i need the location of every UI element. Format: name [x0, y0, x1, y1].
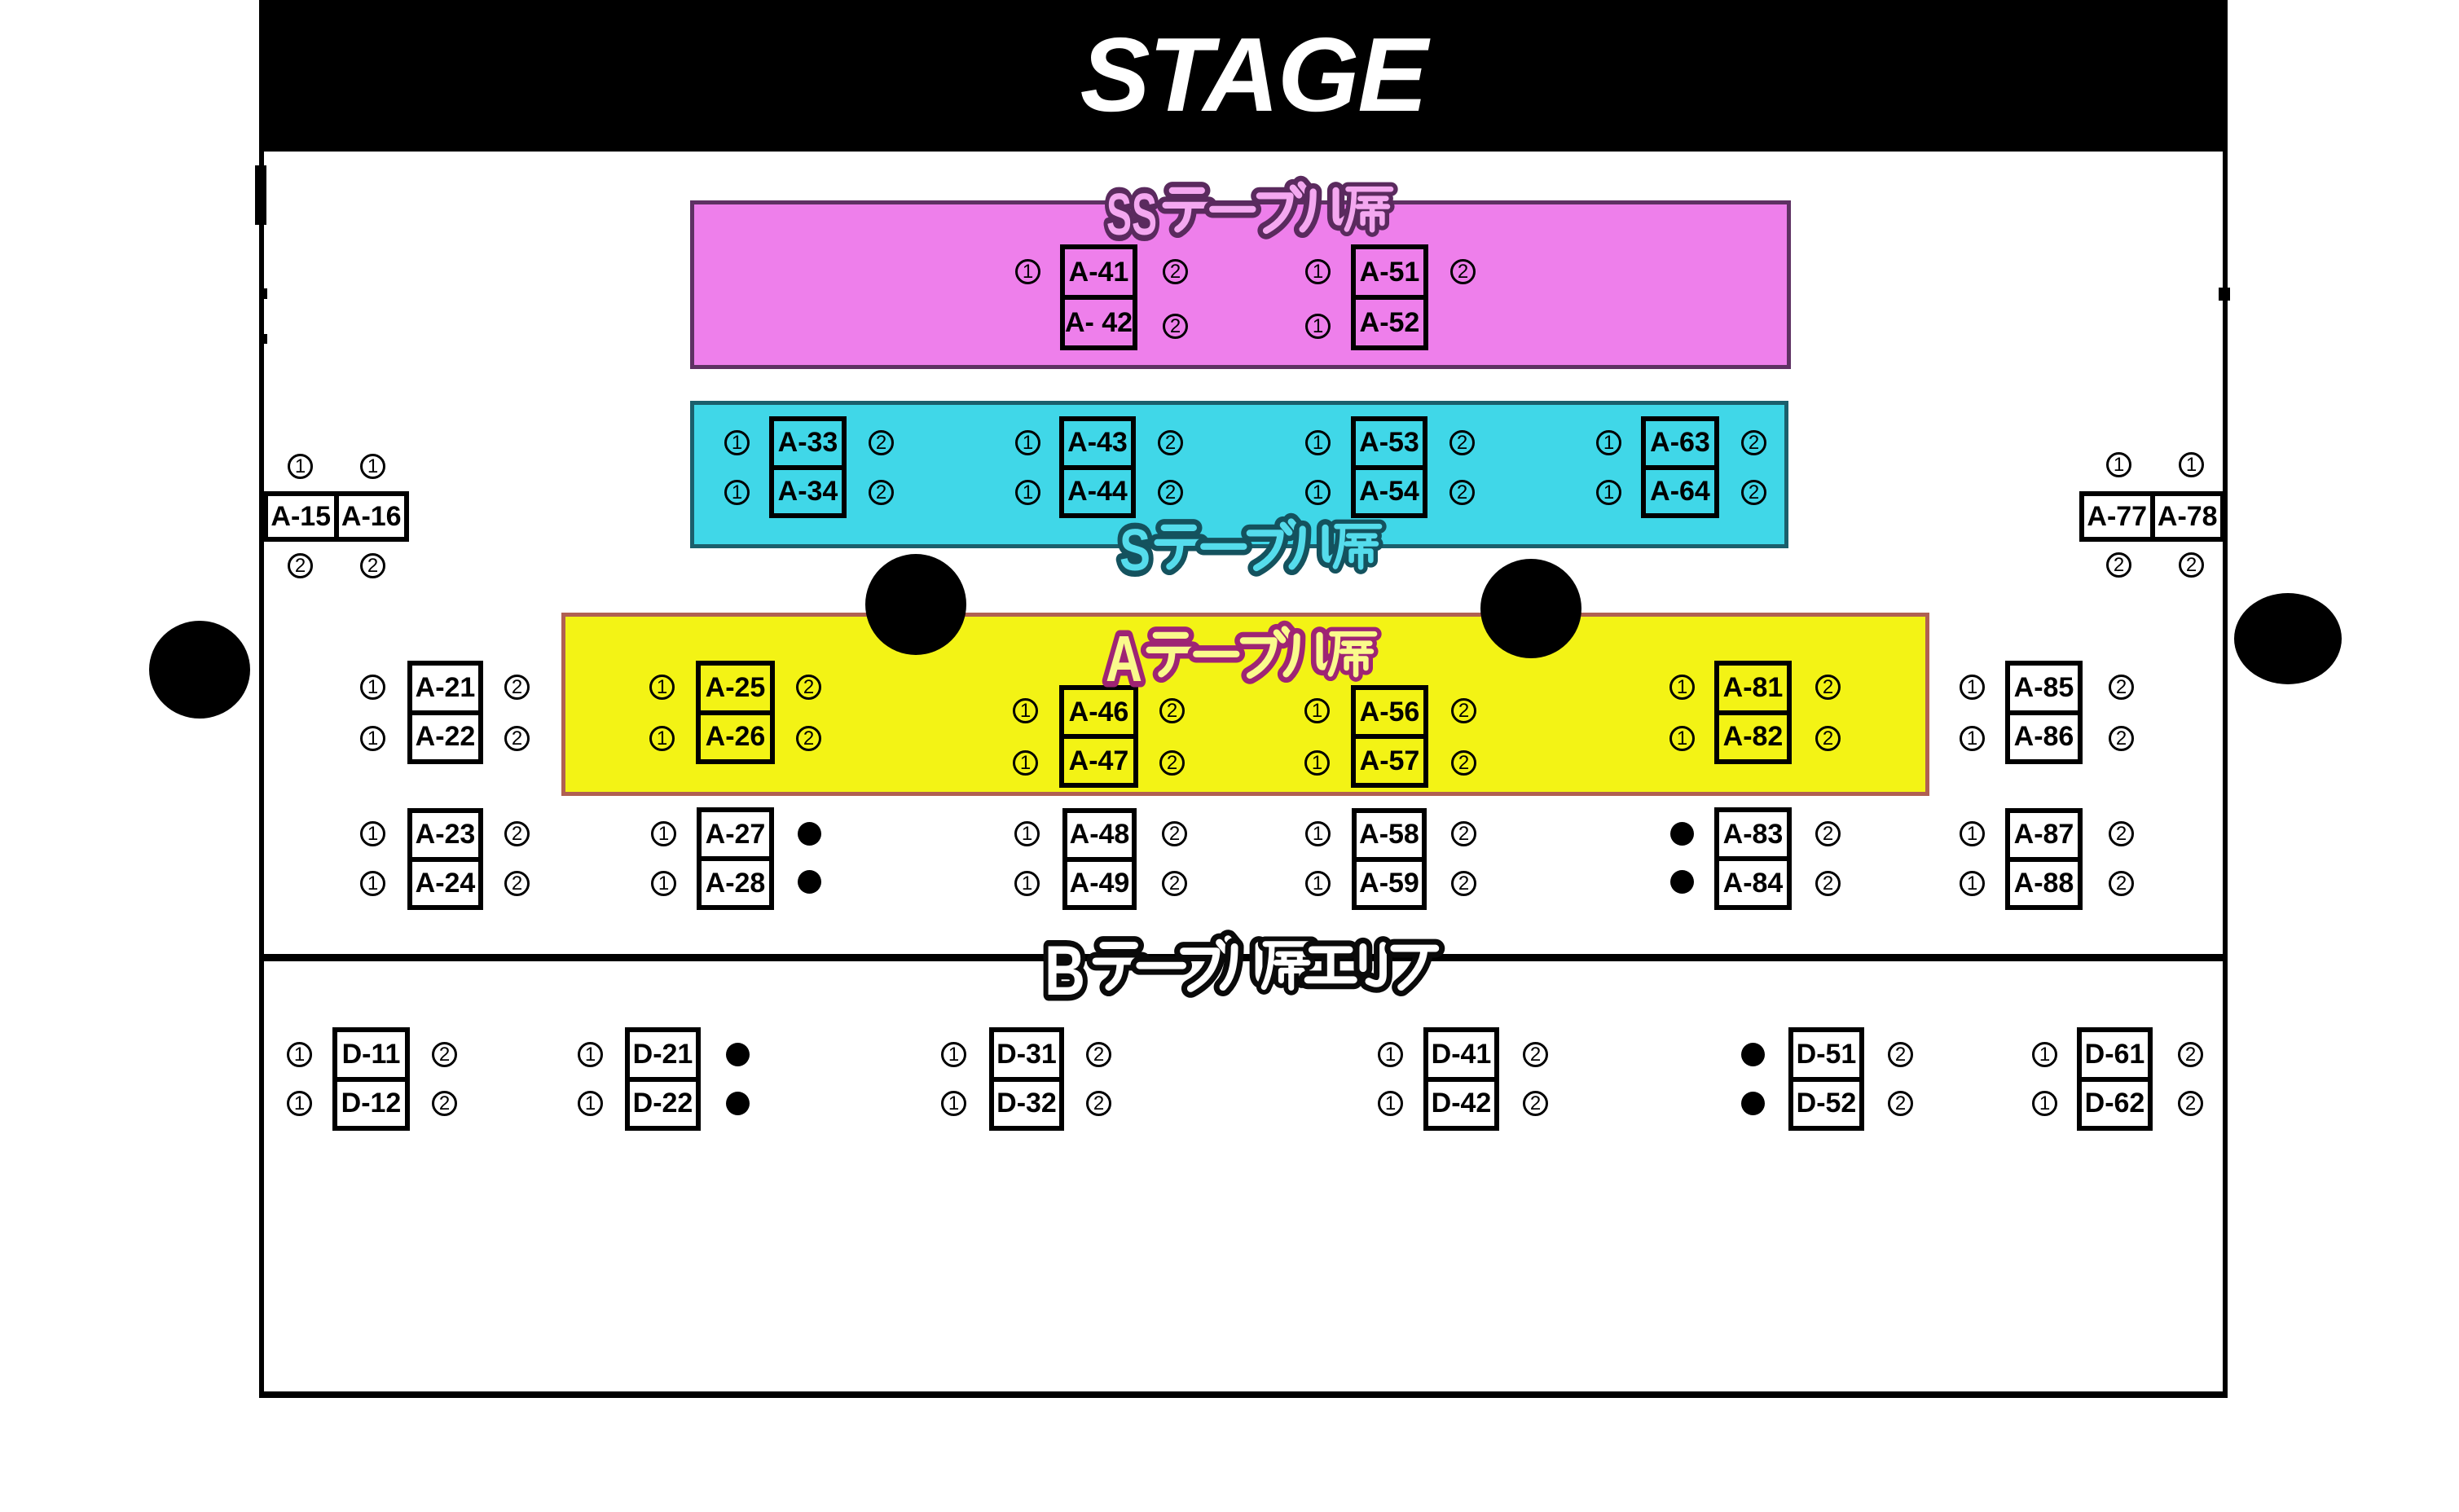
svg-text:B: B [1045, 932, 1085, 1010]
